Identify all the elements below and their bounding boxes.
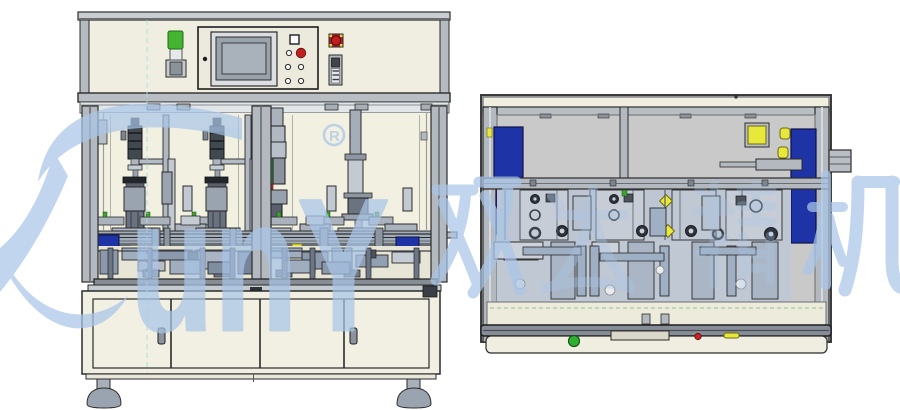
svg-text:unY: unY — [130, 160, 389, 370]
svg-text:R: R — [329, 128, 340, 145]
